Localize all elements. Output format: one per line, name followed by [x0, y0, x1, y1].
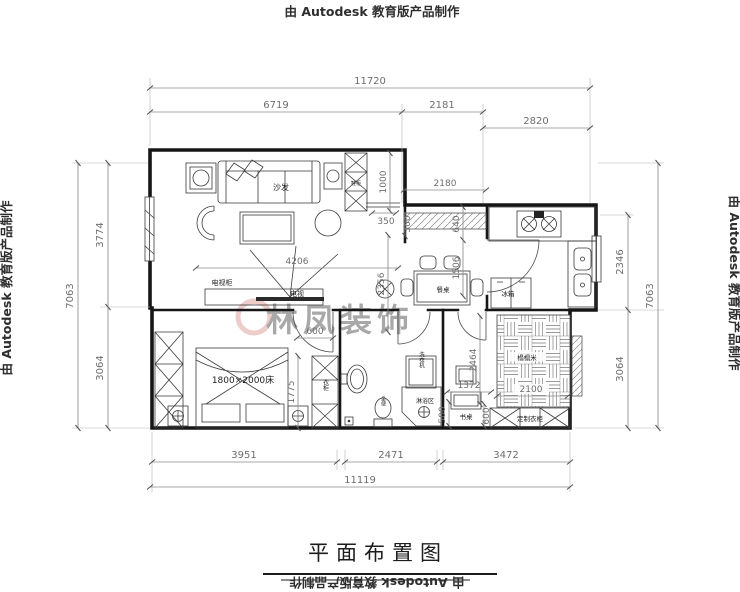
label-tv-cabinet: 电视柜	[212, 278, 233, 287]
side-plant	[324, 163, 342, 189]
stamp-top: 由 Autodesk 教育版产品制作	[284, 4, 460, 19]
radiator	[572, 336, 582, 396]
dim-600b: 600	[482, 407, 492, 424]
dim-top-overall: 11720	[354, 76, 386, 87]
dim-top-left: 6719	[263, 100, 288, 111]
dim-bottom-overall: 11119	[344, 475, 376, 486]
dim-right-lower: 3064	[615, 356, 626, 381]
dim-tatami-width: 2100	[520, 385, 543, 395]
label-shower: 淋浴区	[416, 397, 434, 405]
dim-bottom-left: 3951	[231, 450, 256, 461]
label-sofa: 沙发	[273, 182, 289, 192]
dim-top-right: 2820	[523, 116, 548, 127]
window-kitchen	[592, 236, 601, 282]
label-fridge: 冰箱	[502, 289, 516, 298]
dim-entry-cabinet: 1000	[379, 170, 389, 193]
label-wardrobe: 衣柜	[322, 378, 329, 392]
stove	[517, 211, 561, 237]
plant-cabinet	[186, 163, 216, 193]
dim-left-upper: 3774	[95, 222, 106, 247]
label-tatami: 榻榻米	[517, 353, 537, 362]
kitchen-sink	[574, 248, 591, 296]
dim-living-width: 4206	[286, 257, 309, 267]
dim-dining-width: 2180	[434, 179, 457, 189]
shower-area	[402, 387, 441, 426]
stamp-bottom: 由 Autodesk 教育版产品制作	[289, 575, 465, 590]
dim-bottom-right: 3472	[493, 450, 518, 461]
tv-unit	[205, 246, 338, 305]
door-tatami	[458, 312, 486, 340]
window-left	[145, 197, 154, 261]
dim-left-overall: 7063	[65, 283, 76, 308]
label-dining-table: 餐桌	[437, 285, 451, 294]
label-shoe-cabinet: 鞋柜	[351, 180, 361, 187]
wardrobe-left	[155, 332, 183, 428]
dim-1506: 1506	[452, 256, 462, 279]
label-custom-wardrobe: 定制衣柜	[517, 414, 544, 423]
bed	[196, 348, 288, 428]
bathroom-sink	[341, 365, 367, 393]
label-washer: 洗衣机	[418, 351, 425, 370]
dim-tatami-height: 2464	[469, 348, 479, 371]
dim-right-upper: 2346	[615, 249, 626, 274]
dim-300: 300	[403, 215, 413, 232]
floor-drain-bath	[345, 417, 353, 425]
dim-entry-gap: 350	[377, 217, 394, 227]
label-desk: 书桌	[460, 412, 474, 421]
stamp-left: 由 Autodesk 教育版产品制作	[0, 200, 14, 376]
dim-right-overall: 7063	[645, 283, 656, 308]
stamp-right: 由 Autodesk 教育版产品制作	[727, 195, 740, 371]
nightstand-left	[168, 406, 188, 426]
dining-table	[401, 256, 483, 305]
label-bed: 1800×2000床	[212, 374, 274, 386]
wardrobe-bedroom-right	[312, 356, 338, 428]
dim-500: 500	[438, 406, 448, 423]
cad-floor-plan-viewport: 林凤装饰 由 Autodesk 教育版产品制作 由 Autodesk 教育版产品…	[0, 0, 740, 592]
dim-dining-depth: 2356	[377, 272, 387, 295]
dim-desk-width: 1372	[458, 381, 481, 391]
dim-bed-side: 1775	[287, 381, 297, 404]
label-tv: 电视	[290, 289, 304, 298]
dim-left-lower: 3064	[95, 355, 106, 380]
sofa	[218, 160, 320, 203]
label-toilet: 坐便	[380, 395, 386, 407]
dim-bottom-mid: 2471	[378, 450, 403, 461]
dim-640: 640	[452, 215, 462, 232]
entry-threshold	[366, 203, 400, 207]
title-block: 平面布置图 由 Autodesk 教育版产品制作	[263, 541, 497, 590]
dim-top-mid: 2181	[429, 100, 454, 111]
round-stool	[315, 210, 341, 236]
dim-door-600: 600	[306, 327, 323, 337]
dining-cabinet	[404, 213, 486, 229]
coffee-table	[240, 212, 294, 244]
drawing-title: 平面布置图	[308, 541, 448, 565]
floor-plan-canvas: 林凤装饰 由 Autodesk 教育版产品制作 由 Autodesk 教育版产品…	[0, 0, 740, 592]
extension-lines	[72, 78, 664, 492]
armchair	[197, 206, 214, 240]
